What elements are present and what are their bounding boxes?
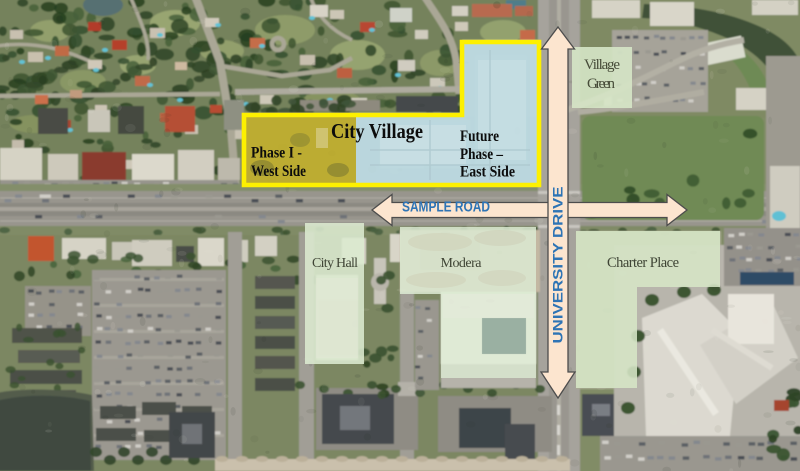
svg-text:City Village: City Village — [331, 119, 423, 143]
svg-text:Future: Future — [460, 128, 499, 145]
svg-text:East Side: East Side — [460, 164, 515, 181]
svg-text:Village: Village — [584, 57, 620, 73]
svg-text:City Hall: City Hall — [312, 256, 358, 271]
svg-text:West Side: West Side — [251, 163, 306, 180]
svg-text:Green: Green — [587, 76, 616, 92]
svg-text:SAMPLE ROAD: SAMPLE ROAD — [402, 199, 490, 216]
svg-text:Phase –: Phase – — [460, 146, 504, 163]
svg-text:Charter Place: Charter Place — [607, 255, 679, 271]
svg-text:UNIVERSITY DRIVE: UNIVERSITY DRIVE — [550, 187, 566, 344]
svg-text:Phase I -: Phase I - — [251, 145, 302, 162]
svg-text:Modera: Modera — [441, 256, 483, 271]
